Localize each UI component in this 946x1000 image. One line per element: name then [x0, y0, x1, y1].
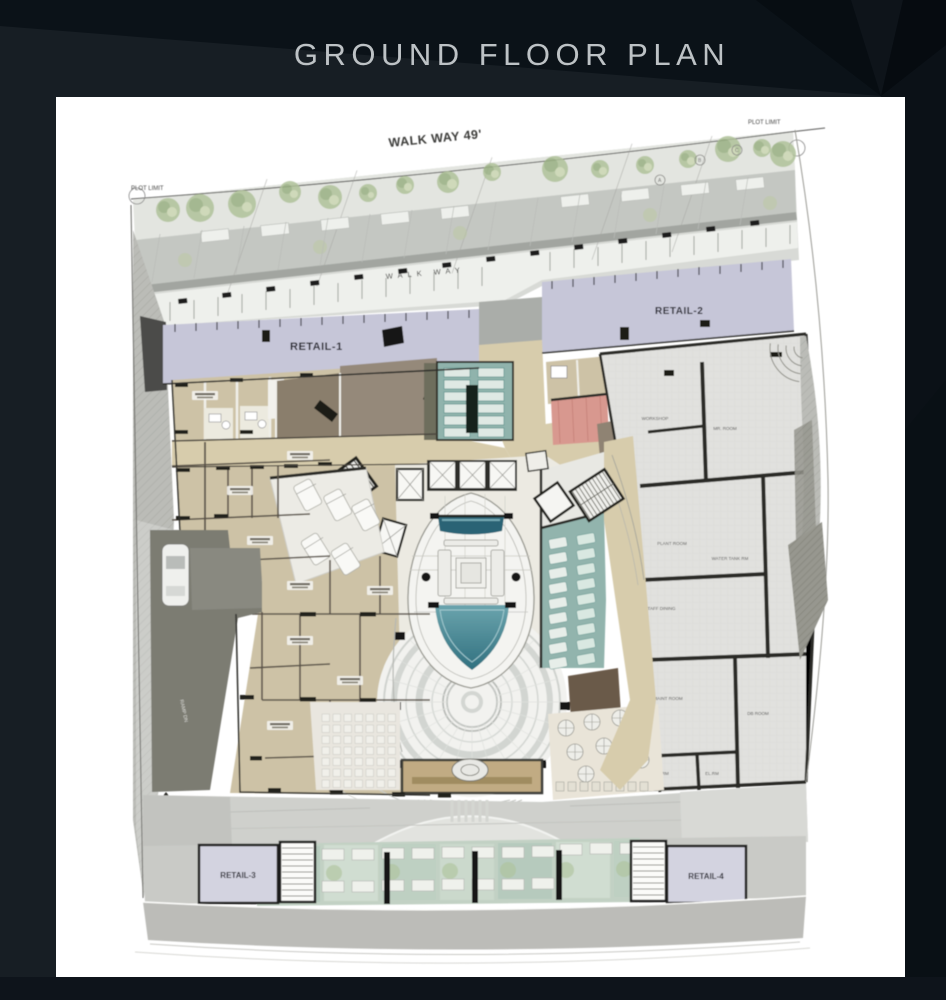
svg-text:PLOT LIMIT: PLOT LIMIT — [748, 120, 781, 126]
svg-text:RETAIL-2: RETAIL-2 — [655, 306, 703, 317]
svg-text:PLANT ROOM: PLANT ROOM — [657, 541, 687, 546]
svg-text:EL.RM: EL.RM — [705, 771, 719, 776]
svg-text:WALK WAY 49': WALK WAY 49' — [388, 127, 483, 150]
svg-text:WORKSHOP: WORKSHOP — [642, 416, 669, 421]
svg-text:RETAIL-4: RETAIL-4 — [688, 872, 724, 881]
svg-text:MAINT ROOM: MAINT ROOM — [653, 696, 682, 701]
svg-text:RETAIL-1: RETAIL-1 — [290, 341, 343, 353]
svg-text:WATER TANK RM: WATER TANK RM — [712, 556, 749, 561]
svg-text:DB ROOM: DB ROOM — [747, 711, 769, 716]
svg-text:PLOT LIMIT: PLOT LIMIT — [131, 186, 164, 192]
svg-text:RETAIL-3: RETAIL-3 — [220, 871, 256, 880]
svg-text:MR. ROOM: MR. ROOM — [713, 426, 737, 431]
svg-text:C: C — [735, 148, 739, 154]
svg-text:STAFF DINING: STAFF DINING — [645, 606, 676, 611]
